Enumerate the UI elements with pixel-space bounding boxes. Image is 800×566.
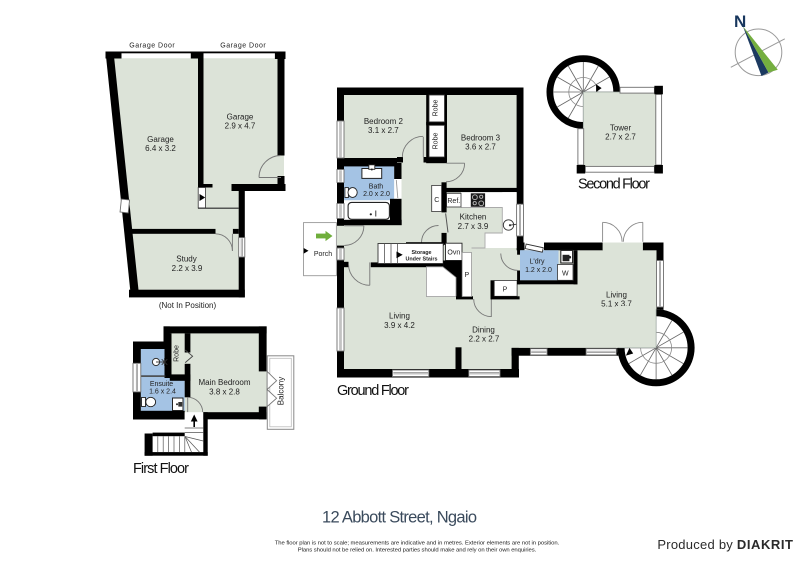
svg-text:Kitchen: Kitchen	[460, 213, 487, 222]
svg-text:Plans should not be relied on.: Plans should not be relied on. Intereste…	[298, 547, 537, 553]
svg-text:Produced by DIAKRIT: Produced by DIAKRIT	[657, 537, 793, 552]
svg-text:P: P	[464, 272, 469, 279]
svg-text:3.6 x 2.7: 3.6 x 2.7	[465, 143, 496, 152]
svg-text:1.2 x 2.0: 1.2 x 2.0	[525, 267, 552, 274]
svg-text:W: W	[562, 271, 569, 278]
svg-text:3.1 x 2.7: 3.1 x 2.7	[368, 126, 399, 135]
svg-text:Ovn: Ovn	[447, 250, 460, 257]
svg-text:3.9 x 4.2: 3.9 x 4.2	[384, 321, 415, 330]
svg-text:2.2 x 2.7: 2.2 x 2.7	[469, 335, 500, 344]
svg-text:3.8 x 2.8: 3.8 x 2.8	[209, 387, 240, 396]
svg-text:Bedroom 3: Bedroom 3	[461, 134, 501, 143]
svg-text:2.9 x 4.7: 2.9 x 4.7	[225, 122, 256, 131]
svg-text:Robe: Robe	[433, 133, 440, 150]
svg-text:N: N	[734, 12, 746, 31]
svg-text:P: P	[503, 287, 508, 294]
svg-text:C: C	[434, 197, 439, 204]
svg-text:2.7 x 2.7: 2.7 x 2.7	[605, 133, 636, 142]
svg-text:The floor plan is not to scale: The floor plan is not to scale; measurem…	[275, 540, 560, 546]
svg-text:12 Abbott Street, Ngaio: 12 Abbott Street, Ngaio	[322, 509, 477, 527]
svg-text:Bedroom 2: Bedroom 2	[364, 117, 404, 126]
svg-text:Second Floor: Second Floor	[578, 177, 650, 193]
svg-text:Robe: Robe	[433, 100, 440, 117]
svg-text:Garage Door: Garage Door	[129, 43, 175, 50]
svg-text:L'dry: L'dry	[530, 259, 545, 266]
svg-text:2.2 x 3.9: 2.2 x 3.9	[172, 264, 203, 273]
svg-text:1.6 x 2.4: 1.6 x 2.4	[149, 389, 176, 396]
svg-text:Dining: Dining	[472, 326, 495, 335]
svg-text:Main Bedroom: Main Bedroom	[198, 378, 250, 387]
svg-text:Garage: Garage	[147, 135, 174, 144]
svg-text:2.0 x 2.0: 2.0 x 2.0	[363, 191, 390, 198]
svg-text:Robe: Robe	[174, 345, 181, 362]
svg-text:Ref.: Ref.	[447, 198, 460, 205]
svg-text:Ensuite: Ensuite	[150, 381, 173, 388]
svg-text:Garage: Garage	[227, 113, 254, 122]
svg-text:Garage Door: Garage Door	[220, 43, 266, 50]
svg-text:(Not In Position): (Not In Position)	[159, 301, 217, 310]
svg-text:Study: Study	[176, 255, 196, 264]
svg-text:Under Stairs: Under Stairs	[405, 257, 437, 263]
svg-text:Porch: Porch	[314, 251, 332, 258]
svg-text:Living: Living	[389, 312, 410, 321]
svg-text:Storage: Storage	[411, 250, 431, 256]
svg-text:Tower: Tower	[610, 124, 632, 133]
svg-text:6.4 x 3.2: 6.4 x 3.2	[145, 144, 176, 153]
svg-text:2.7 x 3.9: 2.7 x 3.9	[458, 222, 489, 231]
svg-text:First Floor: First Floor	[133, 461, 189, 477]
svg-text:Ground Floor: Ground Floor	[337, 383, 409, 399]
svg-text:Bath: Bath	[369, 183, 384, 190]
svg-text:Balcony: Balcony	[277, 377, 286, 405]
svg-text:Living: Living	[606, 291, 627, 300]
